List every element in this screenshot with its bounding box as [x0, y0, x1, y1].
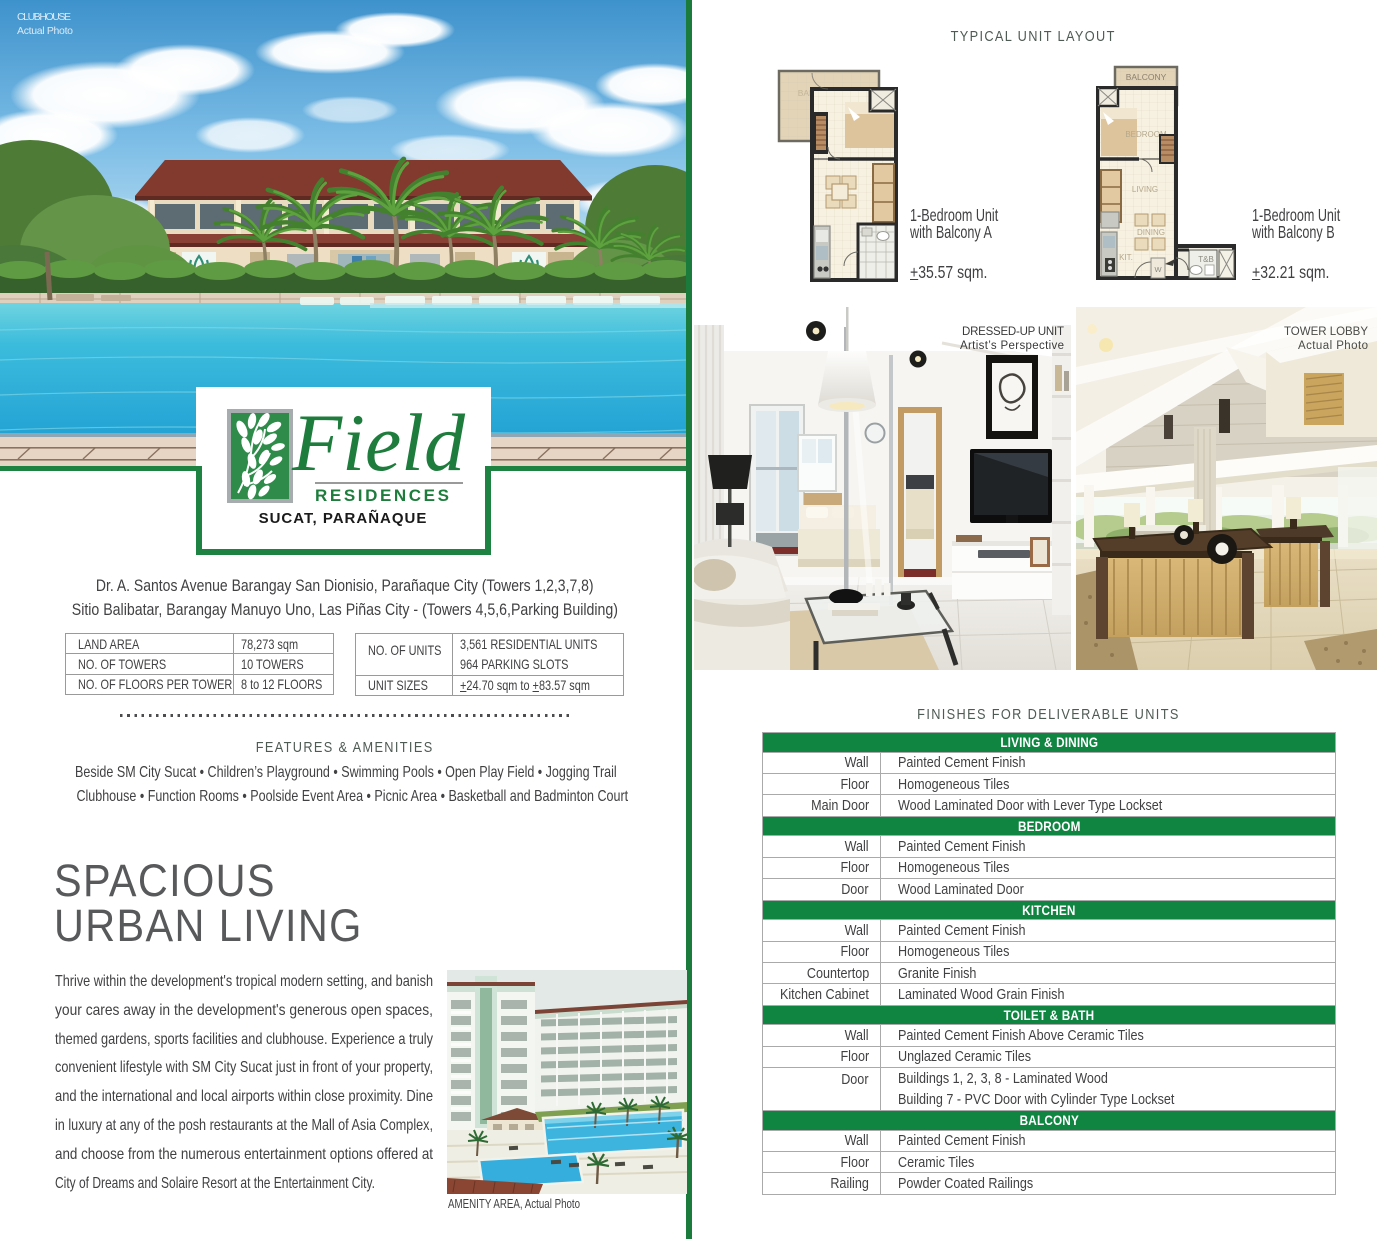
- svg-text:TOWER LOBBY: TOWER LOBBY: [1284, 326, 1368, 338]
- svg-text:Artist’s Perspective: Artist’s Perspective: [960, 340, 1064, 352]
- svg-text:DINING: DINING: [1137, 228, 1165, 237]
- svg-text:DRESSED-UP UNIT: DRESSED-UP UNIT: [962, 326, 1064, 338]
- svg-text:Actual Photo: Actual Photo: [1298, 340, 1368, 352]
- svg-text:Field: Field: [291, 397, 466, 488]
- svg-text:KIT.: KIT.: [1119, 253, 1133, 262]
- svg-text:RESIDENCES: RESIDENCES: [315, 486, 452, 505]
- svg-text:W: W: [1154, 265, 1162, 274]
- svg-text:SUCAT, PARAÑAQUE: SUCAT, PARAÑAQUE: [259, 509, 428, 527]
- svg-text:CLUBHOUSE: CLUBHOUSE: [17, 11, 71, 23]
- svg-text:T&B: T&B: [1198, 255, 1214, 264]
- svg-text:Actual Photo: Actual Photo: [17, 25, 73, 37]
- svg-text:BALCONY: BALCONY: [1126, 72, 1167, 82]
- svg-text:LIVING: LIVING: [1132, 185, 1158, 194]
